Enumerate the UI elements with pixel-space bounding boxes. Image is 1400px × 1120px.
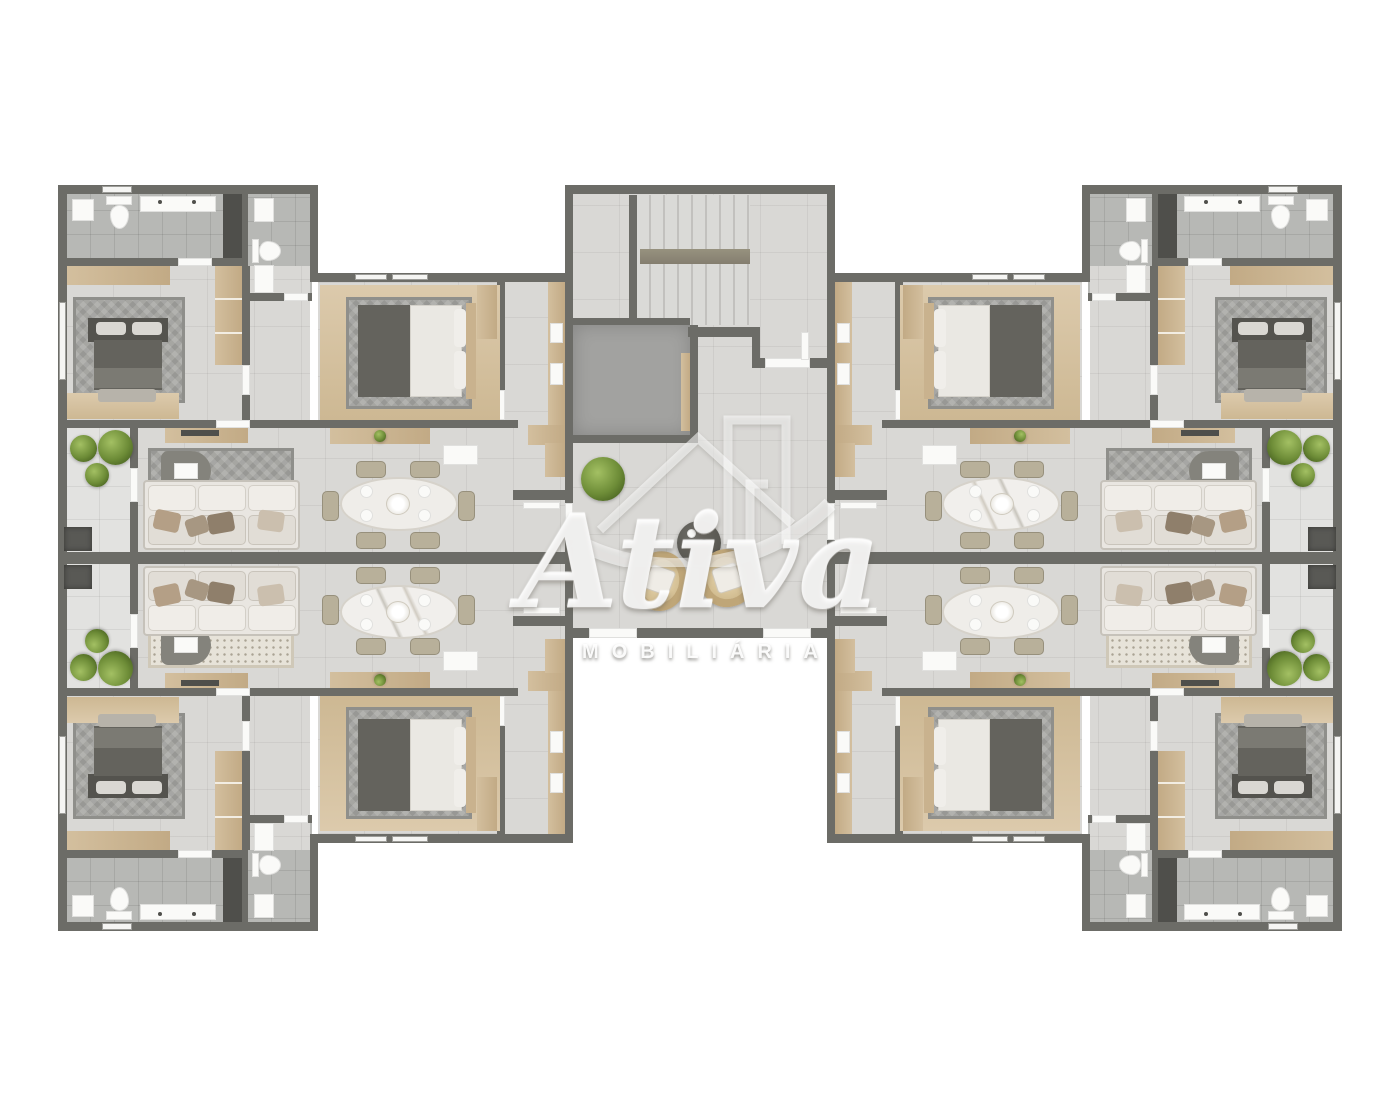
- kitchen-stub-wall: [513, 616, 565, 626]
- wardrobe-handle-line: [215, 782, 242, 784]
- bed-pillow: [96, 322, 126, 335]
- toilet-tank: [1268, 911, 1294, 920]
- centerpiece: [386, 601, 410, 623]
- plate: [360, 485, 373, 498]
- bed-pillow: [934, 727, 946, 765]
- faucet: [192, 912, 196, 916]
- bathroom-wall: [67, 850, 178, 858]
- bed-blanket: [1238, 728, 1306, 748]
- headboard-shelf: [67, 831, 170, 850]
- apartment-unit-top-left: [58, 185, 573, 558]
- dining-chair: [960, 638, 990, 655]
- kitchen-counter-l: [835, 443, 855, 477]
- tv: [181, 430, 219, 436]
- bed-pillow: [454, 769, 466, 807]
- wardrobe-handle-line: [215, 332, 242, 334]
- dining-chair: [960, 532, 990, 549]
- dining-chair: [322, 595, 339, 625]
- bed-throw: [358, 719, 412, 811]
- table-decor: [687, 529, 696, 538]
- centerpiece: [990, 493, 1014, 515]
- shaft-door-frame: [681, 353, 690, 431]
- bedroom-bottom-wall: [882, 688, 1150, 696]
- bathroom-window: [102, 923, 132, 930]
- bed-pillow: [454, 309, 466, 347]
- dining-chair: [356, 532, 386, 549]
- wardrobe-handle-line: [1158, 332, 1185, 334]
- shower-strip: [1158, 858, 1177, 922]
- bed-pillow: [1238, 781, 1268, 794]
- dining-chair: [925, 491, 942, 521]
- vanity-counter: [1126, 823, 1146, 851]
- bathroom-wall: [1222, 258, 1333, 266]
- inner-block-top-wall: [827, 834, 1088, 843]
- wardrobe-handle-line: [215, 298, 242, 300]
- step-wall: [310, 185, 318, 282]
- vanity-counter: [1126, 265, 1146, 293]
- sink: [254, 894, 274, 918]
- bedroom-wall: [1150, 266, 1158, 365]
- inner-bedroom-window: [392, 274, 428, 280]
- chaise-cushion: [1202, 637, 1226, 653]
- hall-door-opening: [216, 688, 250, 696]
- sofa-seat-cushion: [248, 605, 296, 631]
- vanity-counter: [140, 904, 216, 920]
- bedroom-window: [1334, 302, 1341, 380]
- dining-chair: [1014, 567, 1044, 584]
- wardrobe: [477, 285, 497, 339]
- table-decor: [701, 539, 707, 545]
- core-wall-top: [565, 185, 835, 194]
- dining-chair: [322, 491, 339, 521]
- bathroom-wall: [1152, 850, 1188, 858]
- bed-headboard: [924, 717, 934, 813]
- bedroom-bottom-wall: [250, 688, 518, 696]
- kitchen-counter: [548, 676, 565, 834]
- kitchen-sink: [550, 773, 563, 793]
- kitchen-cooktop: [837, 363, 850, 385]
- balcony-shrub: [1303, 654, 1330, 681]
- chaise-cushion: [174, 463, 198, 479]
- shaft-wall: [690, 325, 698, 443]
- sofa-seat-cushion: [1204, 605, 1252, 631]
- kitchen-counter-l: [835, 639, 855, 673]
- stair-side-wall: [629, 195, 637, 325]
- washing-machine: [1306, 199, 1328, 221]
- counter-plant: [1014, 430, 1026, 442]
- plate: [418, 485, 431, 498]
- tall-wardrobe: [215, 751, 242, 850]
- headboard-shelf: [1230, 831, 1333, 850]
- throw-pillow: [1115, 583, 1144, 606]
- outer-wall-top: [58, 185, 318, 194]
- second-bathroom-door: [1092, 293, 1116, 301]
- bed-pillow: [1274, 781, 1304, 794]
- tall-wardrobe: [1158, 751, 1185, 850]
- dining-chair: [356, 638, 386, 655]
- throw-pillow: [1115, 509, 1144, 532]
- shower-strip: [223, 858, 242, 922]
- floor-plan-canvas: Ativa MOBILIÁRIA: [0, 0, 1400, 1120]
- kitchen-island: [922, 651, 957, 671]
- bed-bench: [1244, 714, 1302, 727]
- kitchen-island: [922, 445, 957, 465]
- bed-blanket: [94, 368, 162, 388]
- tv: [181, 680, 219, 686]
- tv: [1181, 430, 1219, 436]
- bathroom-door-opening: [1188, 258, 1222, 266]
- plate: [360, 618, 373, 631]
- bathroom-divider-wall: [242, 193, 248, 258]
- dining-chair: [1061, 491, 1078, 521]
- dining-chair: [410, 638, 440, 655]
- kitchen-counter-l: [528, 425, 565, 445]
- faucet: [192, 200, 196, 204]
- inner-block-top-wall: [312, 834, 573, 843]
- plate: [1027, 594, 1040, 607]
- sofa-seat-cushion: [1204, 485, 1252, 511]
- balcony-shrub: [70, 435, 97, 462]
- bedroom-bottom-wall: [250, 420, 518, 428]
- kitchen-sink: [837, 773, 850, 793]
- elevator-shaft: [573, 325, 690, 435]
- bed-pillow: [454, 351, 466, 389]
- balcony-shrub: [70, 654, 97, 681]
- bedroom-door-opening: [1150, 721, 1158, 751]
- toilet-bowl: [1119, 855, 1141, 875]
- bathroom-wall: [67, 258, 178, 266]
- kitchen-cooktop: [550, 363, 563, 385]
- bathroom-door-opening: [1188, 850, 1222, 858]
- kitchen-counter-l: [835, 425, 872, 445]
- core-door-opening: [763, 628, 811, 638]
- vanity-counter: [254, 823, 274, 851]
- plate: [969, 509, 982, 522]
- bed-blanket: [94, 728, 162, 748]
- bed-headboard: [466, 717, 476, 813]
- balcony-shrub: [98, 651, 133, 686]
- plate: [418, 594, 431, 607]
- sofa-seat-cushion: [1104, 605, 1152, 631]
- bedroom-wall: [242, 751, 250, 850]
- plate: [360, 594, 373, 607]
- balcony-door-opening: [1262, 614, 1270, 648]
- sofa-seat-cushion: [1154, 485, 1202, 511]
- bedroom-wall: [1150, 751, 1158, 850]
- second-bathroom-door: [284, 293, 308, 301]
- hall-door-opening: [1150, 688, 1184, 696]
- wardrobe-handle-line: [215, 816, 242, 818]
- kitchen-stub-wall: [835, 490, 887, 500]
- kitchen-cooktop: [550, 731, 563, 753]
- bed-headboard: [924, 303, 934, 399]
- outer-wall-top: [58, 922, 318, 931]
- toilet-tank: [252, 853, 259, 877]
- bedroom-wall: [242, 266, 250, 365]
- bed-throw: [358, 305, 412, 397]
- inner-bedroom-window: [1013, 274, 1045, 280]
- balcony-door-opening: [130, 614, 138, 648]
- bed-pillow: [1238, 322, 1268, 335]
- bedroom-door-opening: [1150, 365, 1158, 395]
- counter-plant: [374, 430, 386, 442]
- inner-bedroom-window: [355, 836, 387, 842]
- bathroom-door-opening: [178, 850, 212, 858]
- vanity-counter: [140, 196, 216, 212]
- planter-box: [1308, 565, 1336, 589]
- bedroom-door-opening: [242, 365, 250, 395]
- bed-blanket: [1238, 368, 1306, 388]
- planter-box: [1308, 527, 1336, 551]
- balcony-door-opening: [130, 468, 138, 502]
- second-bathroom-door: [284, 815, 308, 823]
- bathroom-door-opening: [178, 258, 212, 266]
- planter-box: [64, 565, 92, 589]
- faucet: [1238, 200, 1242, 204]
- dining-chair: [458, 595, 475, 625]
- dining-chair: [410, 532, 440, 549]
- balcony-shrub: [1267, 430, 1302, 465]
- plate: [1027, 509, 1040, 522]
- bathroom-wall: [1152, 258, 1188, 266]
- inner-bedroom-window: [972, 836, 1008, 842]
- vanity-counter: [1184, 196, 1260, 212]
- wardrobe: [903, 285, 923, 339]
- step-wall: [1082, 185, 1090, 282]
- core-wall-right: [827, 185, 835, 638]
- balcony-shrub: [85, 629, 109, 653]
- dining-chair: [410, 461, 440, 478]
- bathroom-window: [1268, 923, 1298, 930]
- step-wall: [1082, 834, 1090, 931]
- throw-pillow: [1164, 511, 1193, 535]
- throw-pillow: [206, 581, 235, 605]
- dining-chair: [356, 567, 386, 584]
- wardrobe: [477, 777, 497, 831]
- bed-pillow: [1274, 322, 1304, 335]
- dining-chair: [410, 567, 440, 584]
- core-door-opening: [589, 628, 637, 638]
- toilet-bowl: [1119, 241, 1141, 261]
- balcony-wall: [1262, 502, 1270, 552]
- hall-door-opening: [216, 420, 250, 428]
- balcony-shrub: [1267, 651, 1302, 686]
- vanity-counter: [1184, 904, 1260, 920]
- dining-chair: [1014, 461, 1044, 478]
- toilet-tank: [1141, 853, 1148, 877]
- washing-machine: [72, 199, 94, 221]
- wardrobe: [903, 777, 923, 831]
- kitchen-island: [443, 651, 478, 671]
- dining-chair: [960, 461, 990, 478]
- bed-pillow: [132, 322, 162, 335]
- bed-pillow: [454, 727, 466, 765]
- bedroom-window: [59, 736, 66, 814]
- stair-hall-wall: [688, 327, 752, 337]
- sink: [1126, 894, 1146, 918]
- vanity-counter: [254, 265, 274, 293]
- chaise-cushion: [174, 637, 198, 653]
- outer-wall-top: [1082, 185, 1342, 194]
- bathroom-wall: [212, 850, 248, 858]
- balcony-wall: [1262, 564, 1270, 614]
- toilet-tank: [252, 239, 259, 263]
- bed-throw: [988, 305, 1042, 397]
- apartment-unit-bottom-left: [58, 558, 573, 931]
- stair-landing: [640, 249, 750, 264]
- bed-headboard: [466, 303, 476, 399]
- kitchen-counter: [835, 676, 852, 834]
- kitchen-sink: [837, 323, 850, 343]
- central-core: [565, 185, 835, 638]
- sofa-seat-cushion: [148, 485, 196, 511]
- sofa-seat-cushion: [1154, 605, 1202, 631]
- balcony-shrub: [85, 463, 109, 487]
- bed-pillow: [934, 351, 946, 389]
- plate: [969, 485, 982, 498]
- bed-bench: [98, 714, 156, 727]
- bed-bench: [1244, 389, 1302, 402]
- tall-wardrobe: [1158, 266, 1185, 365]
- balcony-wall: [130, 564, 138, 614]
- apartment-entry-opening: [827, 503, 835, 540]
- shaft-wall: [565, 435, 698, 443]
- kitchen-stub-wall: [513, 490, 565, 500]
- throw-pillow: [257, 509, 286, 532]
- sink: [254, 198, 274, 222]
- shaft-wall: [573, 318, 690, 325]
- sofa-seat-cushion: [1104, 485, 1152, 511]
- headboard-shelf: [67, 266, 170, 285]
- dining-chair: [925, 595, 942, 625]
- bed-pillow: [96, 781, 126, 794]
- wardrobe-handle-line: [1158, 816, 1185, 818]
- entry-door-leaf: [840, 502, 877, 509]
- apartment-unit-bottom-right: [827, 558, 1342, 931]
- bed-throw: [988, 719, 1042, 811]
- inner-block-top-wall: [827, 273, 1088, 282]
- apartment-entry-opening: [565, 503, 573, 540]
- kitchen-counter-l: [545, 443, 565, 477]
- kitchen-counter: [548, 282, 565, 440]
- kitchen-counter-l: [545, 639, 565, 673]
- inner-block-top-wall: [312, 273, 573, 282]
- dining-chair: [458, 491, 475, 521]
- throw-pillow: [257, 583, 286, 606]
- faucet: [1238, 912, 1242, 916]
- bedroom-window: [59, 302, 66, 380]
- counter-plant: [374, 674, 386, 686]
- bathroom-wall: [1222, 850, 1333, 858]
- kitchen-island: [443, 445, 478, 465]
- faucet: [158, 912, 162, 916]
- dining-chair: [1014, 638, 1044, 655]
- kitchen-sink: [550, 323, 563, 343]
- entry-door-leaf: [523, 607, 560, 614]
- inner-bedroom-window: [972, 274, 1008, 280]
- toilet-bowl: [110, 887, 129, 911]
- stair-hall-wall: [752, 327, 760, 368]
- dining-chair: [356, 461, 386, 478]
- bed-pillow: [934, 769, 946, 807]
- planter-box: [64, 527, 92, 551]
- centerpiece: [386, 493, 410, 515]
- wardrobe-handle-line: [1158, 782, 1185, 784]
- bathroom-wall: [212, 258, 248, 266]
- stair-door-leaf: [801, 332, 809, 360]
- bed-bench: [98, 389, 156, 402]
- toilet-tank: [106, 911, 132, 920]
- sofa-seat-cushion: [248, 485, 296, 511]
- balcony-door-opening: [1262, 468, 1270, 502]
- sofa-seat-cushion: [148, 605, 196, 631]
- entry-door-leaf: [523, 502, 560, 509]
- plate: [1027, 485, 1040, 498]
- washing-machine: [1306, 895, 1328, 917]
- balcony-shrub: [1291, 629, 1315, 653]
- plate: [969, 594, 982, 607]
- dining-chair: [1014, 532, 1044, 549]
- hall-plant: [581, 457, 625, 501]
- bathroom-window: [102, 186, 132, 193]
- kitchen-counter-l: [835, 671, 872, 691]
- faucet: [1204, 200, 1208, 204]
- apartment-unit-top-right: [827, 185, 1342, 558]
- toilet-tank: [1141, 239, 1148, 263]
- bedroom-bottom-wall: [882, 420, 1150, 428]
- plate: [418, 618, 431, 631]
- shower-strip: [1158, 194, 1177, 258]
- kitchen-counter-l: [528, 671, 565, 691]
- counter-plant: [1014, 674, 1026, 686]
- bedroom-window: [1334, 736, 1341, 814]
- headboard-shelf: [1230, 266, 1333, 285]
- balcony-wall: [130, 502, 138, 552]
- dining-chair: [960, 567, 990, 584]
- outer-wall-top: [1082, 922, 1342, 931]
- bathroom-divider-wall: [242, 858, 248, 923]
- entry-door-leaf: [840, 607, 877, 614]
- sofa-seat-cushion: [198, 485, 246, 511]
- toilet-bowl: [1271, 887, 1290, 911]
- hall-door-opening: [1150, 420, 1184, 428]
- step-wall: [310, 834, 318, 931]
- tv: [1181, 680, 1219, 686]
- plate: [360, 509, 373, 522]
- sink: [1126, 198, 1146, 222]
- kitchen-stub-wall: [835, 616, 887, 626]
- bed-pillow: [934, 309, 946, 347]
- wardrobe-handle-line: [1158, 298, 1185, 300]
- toilet-tank: [1268, 196, 1294, 205]
- kitchen-counter: [835, 282, 852, 440]
- bathroom-window: [1268, 186, 1298, 193]
- balcony-shrub: [98, 430, 133, 465]
- chaise-cushion: [1202, 463, 1226, 479]
- washing-machine: [72, 895, 94, 917]
- inner-bedroom-window: [355, 274, 387, 280]
- plate: [969, 618, 982, 631]
- second-bathroom-door: [1092, 815, 1116, 823]
- balcony-shrub: [1303, 435, 1330, 462]
- tall-wardrobe: [215, 266, 242, 365]
- balcony-shrub: [1291, 463, 1315, 487]
- centerpiece: [990, 601, 1014, 623]
- inner-bedroom-window: [392, 836, 428, 842]
- faucet: [158, 200, 162, 204]
- sofa-seat-cushion: [198, 605, 246, 631]
- plate: [1027, 618, 1040, 631]
